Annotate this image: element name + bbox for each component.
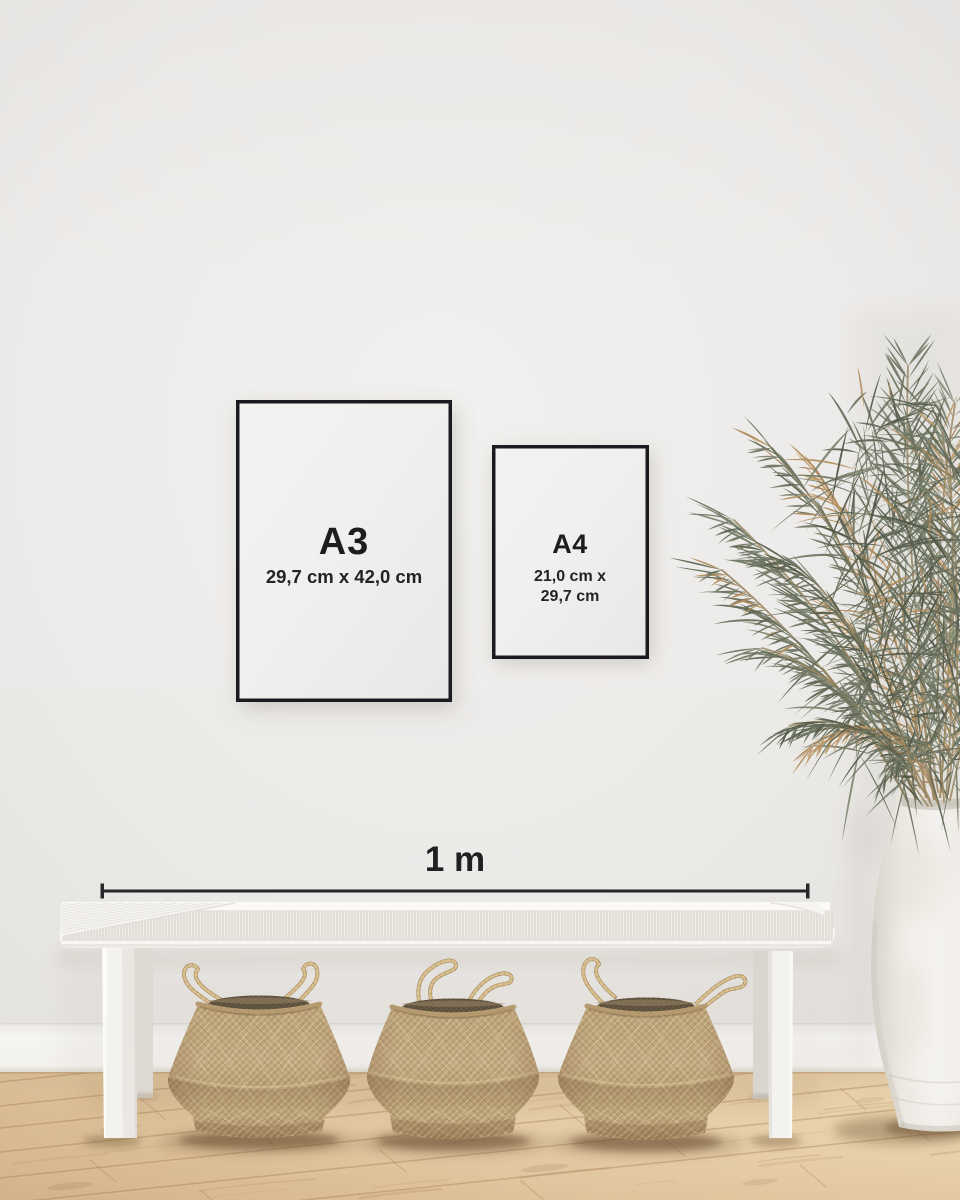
svg-text:21,0 cm x: 21,0 cm x: [534, 568, 606, 585]
svg-text:1 m: 1 m: [425, 840, 485, 879]
svg-text:29,7 cm: 29,7 cm: [541, 588, 600, 605]
svg-text:29,7 cm x 42,0 cm: 29,7 cm x 42,0 cm: [266, 566, 422, 587]
svg-text:A3: A3: [319, 521, 370, 563]
svg-text:A4: A4: [552, 529, 588, 559]
